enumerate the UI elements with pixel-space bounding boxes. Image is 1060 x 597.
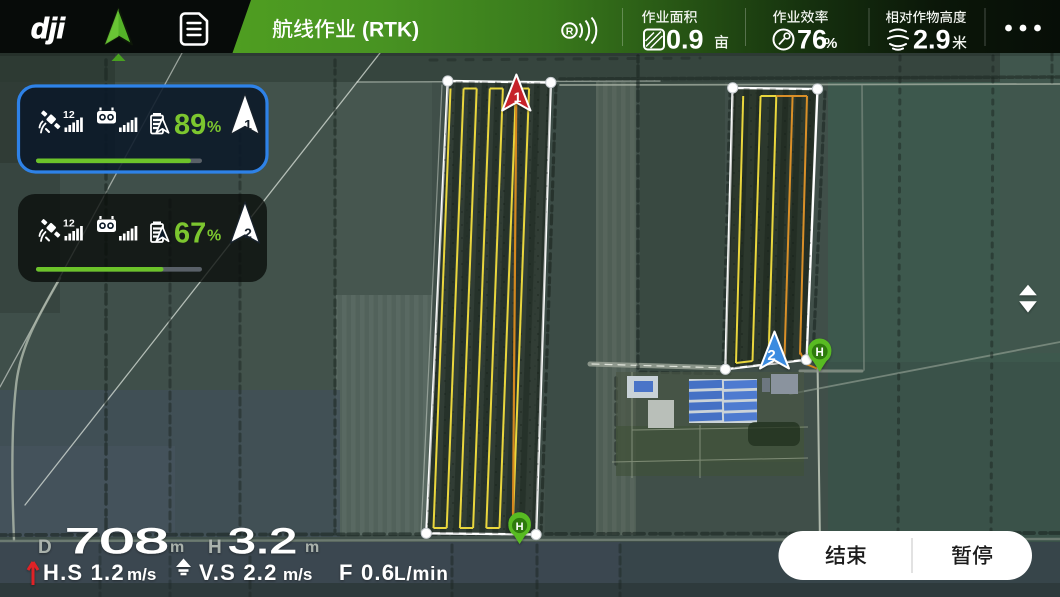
svg-text:12: 12 — [63, 218, 75, 230]
svg-text:m/s: m/s — [127, 565, 156, 584]
svg-text:%: % — [207, 119, 221, 136]
svg-text:%: % — [207, 228, 221, 245]
svg-text:H: H — [516, 521, 524, 533]
svg-text:2.9: 2.9 — [913, 25, 951, 55]
svg-text:1: 1 — [514, 89, 522, 105]
svg-text:2: 2 — [767, 347, 775, 364]
svg-text:H.S 1.2: H.S 1.2 — [43, 560, 125, 585]
svg-text:m: m — [170, 539, 184, 556]
svg-text:L/min: L/min — [394, 564, 449, 585]
svg-text:%: % — [824, 35, 837, 52]
svg-text:D: D — [38, 537, 52, 558]
svg-text:76: 76 — [797, 25, 827, 55]
svg-text:708: 708 — [65, 521, 169, 560]
svg-text:V.S 2.2: V.S 2.2 — [199, 560, 278, 585]
svg-text:R: R — [566, 26, 574, 38]
svg-text:3.2: 3.2 — [228, 522, 297, 561]
svg-text:89: 89 — [174, 109, 206, 141]
svg-text:dji: dji — [31, 13, 66, 45]
svg-text:0.9: 0.9 — [666, 25, 704, 55]
svg-text:H: H — [816, 347, 824, 359]
svg-text:12: 12 — [63, 109, 75, 121]
svg-text:(RTK): (RTK) — [362, 19, 419, 42]
svg-text:1: 1 — [244, 117, 252, 133]
svg-text:F 0.6: F 0.6 — [339, 560, 395, 585]
svg-text:m: m — [305, 539, 319, 556]
svg-text:67: 67 — [174, 218, 206, 250]
svg-text:m/s: m/s — [283, 565, 312, 584]
svg-text:H: H — [208, 537, 222, 558]
svg-text:2: 2 — [244, 225, 252, 241]
